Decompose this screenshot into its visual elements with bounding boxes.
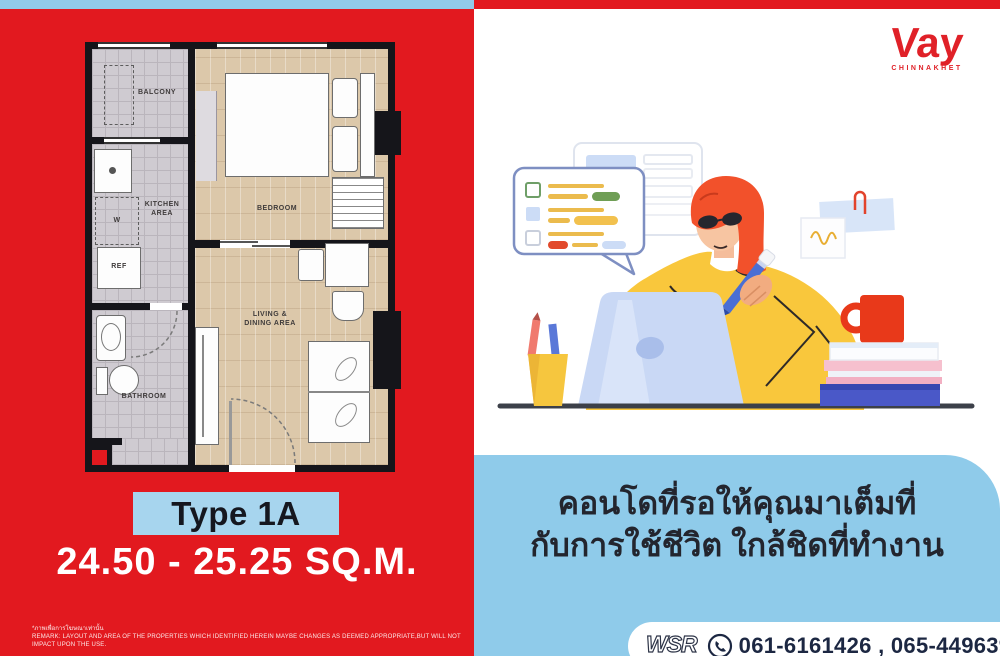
laptop <box>578 292 744 406</box>
balcony-label: BALCONY <box>128 89 186 98</box>
pencil-cup <box>528 312 568 406</box>
stool <box>332 291 364 321</box>
wall-bath-bottom <box>92 438 122 445</box>
bathroom-door-gap <box>150 303 182 310</box>
fridge-label: REF <box>97 263 141 272</box>
balcony-top-window <box>98 42 170 49</box>
bed <box>225 73 329 177</box>
column-bedroom <box>375 111 401 155</box>
tv-line <box>202 335 204 437</box>
balcony-window <box>104 137 160 144</box>
sticky-notes <box>801 192 895 258</box>
contact-bar: WSR 061-6161426 , 065-4496399 <box>628 622 1000 656</box>
right-top-strip <box>474 0 1000 9</box>
disclaimer: *ภาพเพื่อการโฆษณาเท่านั้น REMARK: LAYOUT… <box>32 625 474 649</box>
vay-logo-text: Vay <box>871 22 984 64</box>
kitchen-faucet <box>109 167 116 174</box>
bedroom-window <box>217 42 327 49</box>
headline-line-1: คอนโดที่รอให้คุณมาเต็มที่ <box>558 485 917 521</box>
bedroom-label: BEDROOM <box>227 205 327 214</box>
wsr-logo-text: WSR <box>646 633 697 656</box>
washer-label: W <box>95 217 139 226</box>
bedside-shelf <box>360 73 375 177</box>
plan-notch <box>92 445 112 465</box>
right-panel: Vay CHINNAKHET <box>474 0 1000 656</box>
unit-area-label: 24.50 - 25.25 SQ.M. <box>0 541 474 584</box>
drawer-unit <box>332 177 384 229</box>
dining-chair <box>298 249 324 281</box>
living-label: LIVING & DINING AREA <box>210 311 330 329</box>
tv-cabinet <box>195 327 219 445</box>
checklist-speech-bubble <box>514 168 644 274</box>
bedroom-closet <box>196 91 217 181</box>
coffee-mug <box>844 295 904 343</box>
toilet-tank <box>96 367 108 395</box>
vay-logo: Vay CHINNAKHET <box>872 22 982 72</box>
condo-advertisement: BALCONY W REF KITCHEN AREA BATHROOM <box>0 0 1000 656</box>
phone-icon <box>707 633 733 656</box>
headline-text: คอนโดที่รอให้คุณมาเต็มที่ กับการใช้ชีวิต… <box>474 483 1000 566</box>
dining-table <box>325 243 369 287</box>
bathroom-label: BATHROOM <box>106 393 182 402</box>
unit-type-label: Type 1A <box>171 495 300 533</box>
pillow-1 <box>332 78 358 118</box>
unit-type-banner: Type 1A <box>133 492 339 535</box>
wsr-logo: WSR <box>646 633 697 656</box>
bath-sink-basin <box>101 323 121 351</box>
pillow-2 <box>332 126 358 172</box>
left-top-strip <box>0 0 474 9</box>
entrance-door-leaf <box>229 401 232 465</box>
left-panel: BALCONY W REF KITCHEN AREA BATHROOM <box>0 0 474 656</box>
floor-plan: BALCONY W REF KITCHEN AREA BATHROOM <box>85 42 395 472</box>
column-living <box>373 311 401 389</box>
vay-logo-subtitle: CHINNAKHET <box>872 65 982 72</box>
working-person-illustration <box>474 88 1000 458</box>
disclaimer-thai: *ภาพเพื่อการโฆษณาเท่านั้น <box>32 625 474 633</box>
disclaimer-english: REMARK: LAYOUT AND AREA OF THE PROPERTIE… <box>32 633 474 649</box>
sliding-door-leaf-2 <box>252 245 290 247</box>
entry-corridor <box>112 438 188 465</box>
kitchen-label: KITCHEN AREA <box>136 201 188 219</box>
headline-line-2: กับการใช้ชีวิต ใกล้ชิดที่ทำงาน <box>530 527 944 563</box>
wall-vertical <box>188 49 195 465</box>
sofa-seam <box>308 391 370 393</box>
entrance-door-gap <box>229 465 295 472</box>
toilet-bowl <box>109 365 139 395</box>
contact-phone-numbers: 061-6161426 , 065-4496399 <box>739 633 1000 656</box>
sliding-door-leaf-1 <box>220 241 258 243</box>
book-stack <box>820 343 942 406</box>
